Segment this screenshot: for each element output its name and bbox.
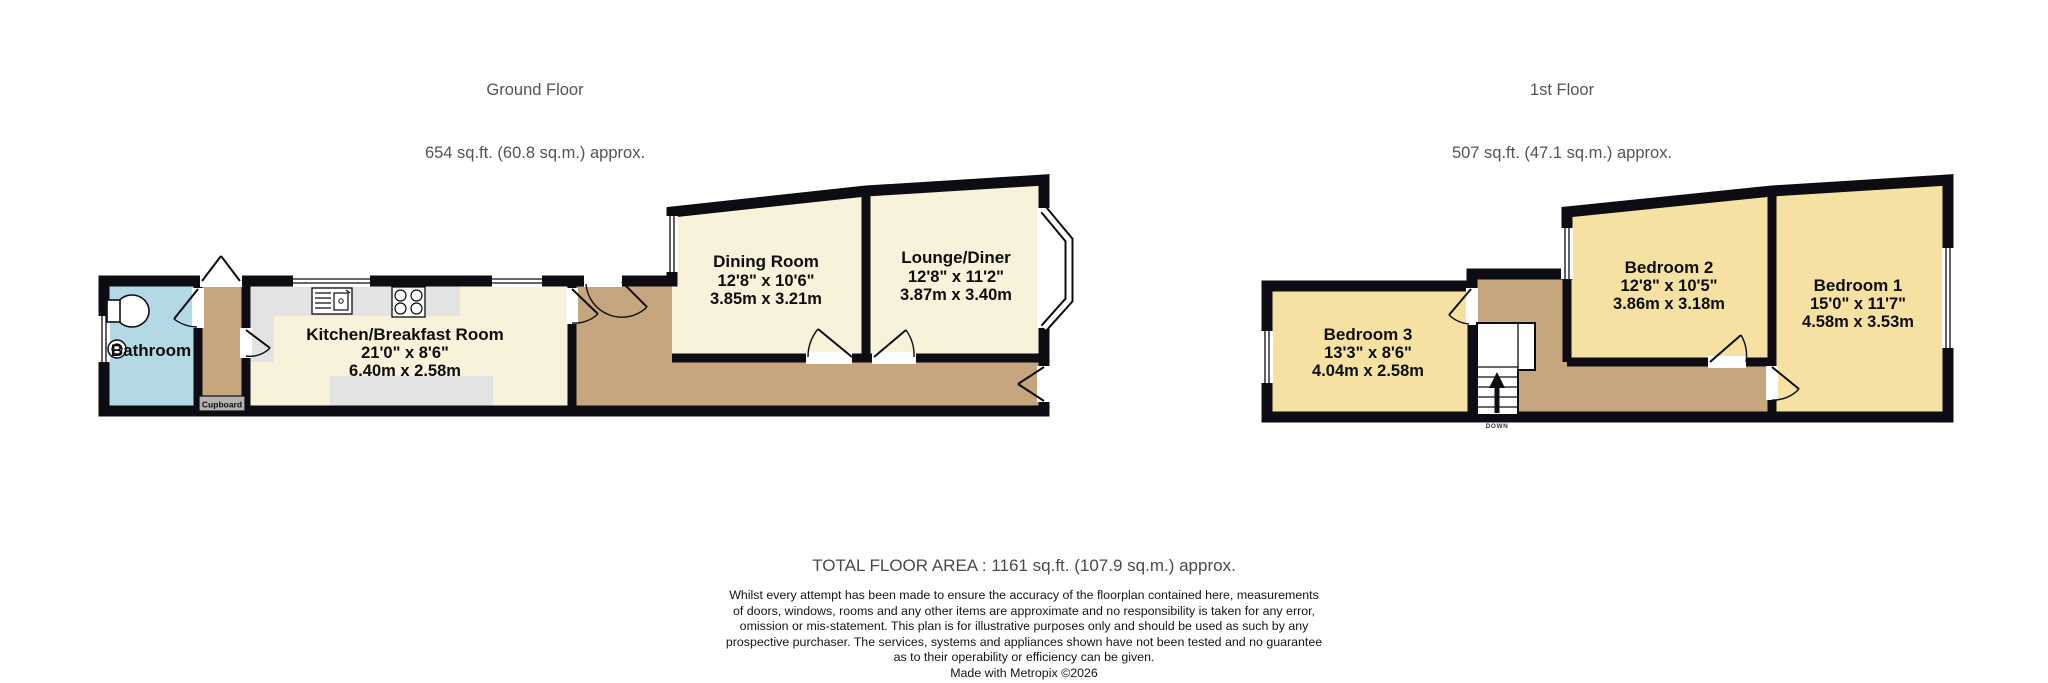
sink-icon: [312, 288, 352, 314]
lounge-dims-metric: 3.87m x 3.40m: [900, 286, 1012, 304]
bedroom1-dims-imperial: 15'0" x 11'7": [1810, 295, 1906, 313]
bathroom-label: Bathroom: [111, 341, 191, 360]
dining-dims-metric: 3.85m x 3.21m: [710, 290, 822, 308]
kitchen-label: Kitchen/Breakfast Room: [306, 325, 503, 344]
dining-label: Dining Room: [713, 252, 819, 271]
first-floor-plan: DOWN Bedroom 3 13'3" x 8'6" 4.04m x 2.58…: [1261, 180, 1954, 430]
door-icon-front: [200, 256, 242, 287]
kitchen-counter-left: [250, 286, 274, 362]
window-icon-kitchen-top-1: [293, 275, 370, 287]
disclaimer: Whilst every attempt has been made to en…: [0, 588, 2048, 682]
bedroom2-dims-metric: 3.86m x 3.18m: [1613, 295, 1725, 313]
room-hallway: [198, 281, 246, 411]
bedroom3-dims-metric: 4.04m x 2.58m: [1312, 362, 1424, 380]
kitchen-dims-metric: 6.40m x 2.58m: [349, 362, 461, 380]
lounge-dims-imperial: 12'8" x 11'2": [908, 268, 1004, 286]
window-icon-bedroom2-left: [1561, 228, 1573, 279]
window-icon-bedroom3-left: [1261, 331, 1273, 383]
kitchen-dims-imperial: 21'0" x 8'6": [361, 344, 449, 362]
lounge-label: Lounge/Diner: [901, 248, 1011, 267]
toilet-icon: [107, 295, 149, 327]
total-floor-area: TOTAL FLOOR AREA : 1161 sq.ft. (107.9 sq…: [0, 556, 2048, 576]
bedroom1-label: Bedroom 1: [1814, 276, 1903, 295]
ground-floor-plan: Cupboard Bathroom Kitchen/Breakfast Room…: [98, 180, 1069, 411]
stairs-down-label: DOWN: [1486, 423, 1509, 430]
floorplan-svg: Cupboard Bathroom Kitchen/Breakfast Room…: [0, 0, 2048, 683]
disclaimer-line: omission or mis-statement. This plan is …: [0, 619, 2048, 635]
window-icon-bathroom-left: [98, 316, 110, 362]
bedroom3-dims-imperial: 13'3" x 8'6": [1324, 344, 1412, 362]
hob-icon: [392, 287, 425, 317]
bedroom2-label: Bedroom 2: [1625, 258, 1714, 277]
bay-window-icon-lounge: [1037, 208, 1069, 328]
disclaimer-line: of doors, windows, rooms and any other i…: [0, 604, 2048, 620]
floorplan-page: Ground Floor 654 sq.ft. (60.8 sq.m.) app…: [0, 0, 2048, 683]
cupboard-box: Cupboard: [199, 396, 245, 411]
bedroom2-dims-imperial: 12'8" x 10'5": [1621, 277, 1718, 295]
cupboard-label: Cupboard: [202, 400, 242, 410]
credit-line: Made with Metropix ©2026: [0, 666, 2048, 682]
dining-dims-imperial: 12'8" x 10'6": [718, 272, 815, 290]
disclaimer-line: Whilst every attempt has been made to en…: [0, 588, 2048, 604]
disclaimer-line: as to their operability or efficiency ca…: [0, 650, 2048, 666]
kitchen-counter-bottom: [330, 376, 493, 407]
disclaimer-line: prospective purchaser. The services, sys…: [0, 635, 2048, 651]
bedroom3-label: Bedroom 3: [1324, 325, 1413, 344]
kitchen-counter-top: [250, 286, 460, 316]
window-icon-kitchen-top-2: [492, 275, 542, 287]
window-icon-dining-left: [666, 216, 678, 272]
bedroom1-dims-metric: 4.58m x 3.53m: [1802, 313, 1914, 331]
window-icon-bedroom1-right: [1942, 248, 1954, 348]
